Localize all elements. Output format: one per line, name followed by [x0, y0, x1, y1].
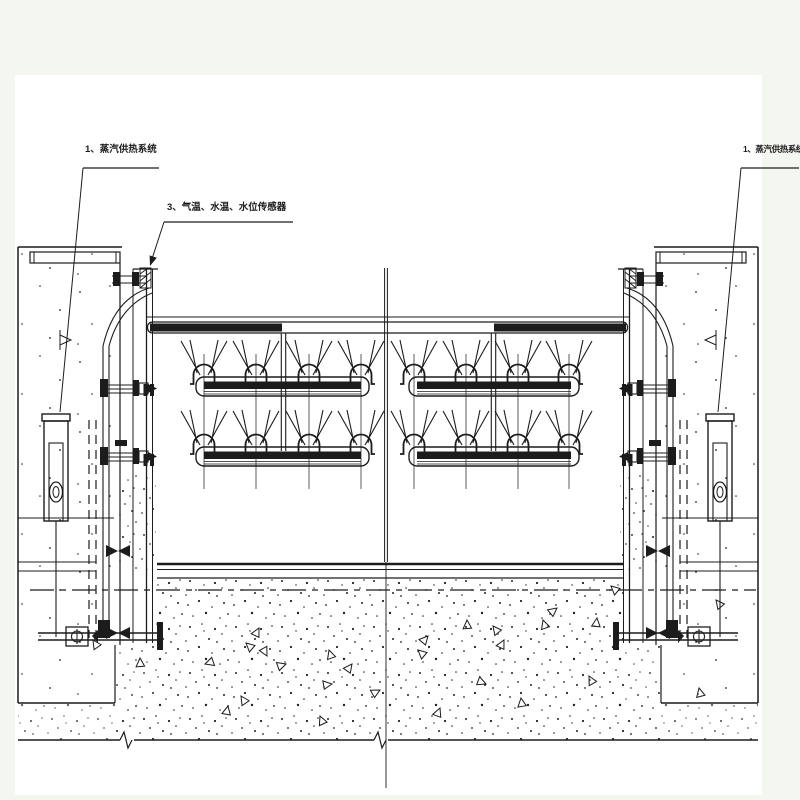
label-steam-system-left: 1、蒸汽供热系统 — [85, 143, 157, 155]
engineering-drawing: 1、蒸汽供热系统 3、气温、水温、水位传感器 1、蒸汽供热系统 — [0, 0, 800, 800]
label-steam-system-right: 1、蒸汽供热系统 — [743, 144, 800, 154]
label-sensor-line: 3、气温、水温、水位传感器 — [167, 201, 287, 213]
drawing-page: 1、蒸汽供热系统 3、气温、水温、水位传感器 1、蒸汽供热系统 — [0, 0, 800, 800]
